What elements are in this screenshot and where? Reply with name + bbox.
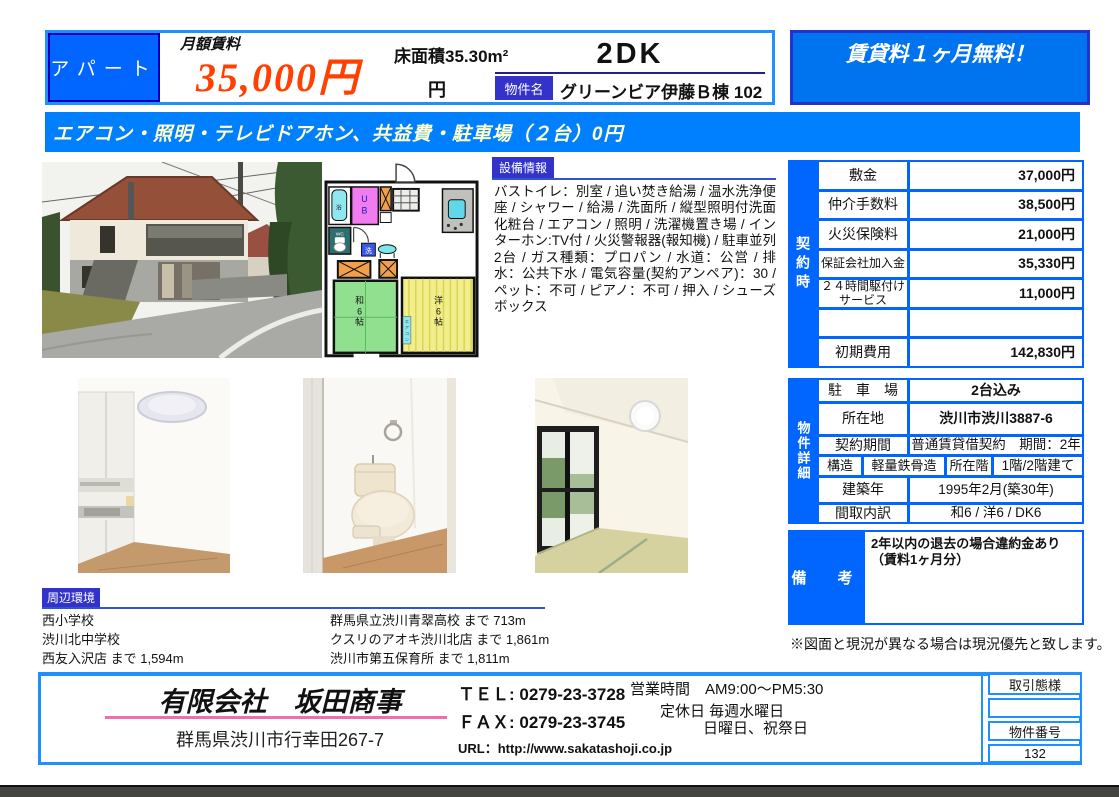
property-name-badge: 物件名	[495, 76, 553, 100]
environment-underline	[42, 607, 545, 609]
table-row: 構造 軽量鉄骨造 所在階 1階/2階建て	[819, 457, 1082, 475]
floorplan-japanese-room-2: 6	[357, 306, 362, 316]
structure-value: 軽量鉄骨造	[864, 457, 944, 475]
feature-banner-text: エアコン・照明・テレビドアホン、共益費・駐車場（２台）0円	[45, 119, 623, 146]
table-row: 保証会社加入金 35,330円	[819, 251, 1082, 278]
equipment-label-badge: 設備情報	[492, 157, 554, 178]
floor-label: 所在階	[947, 457, 991, 475]
contract-row-label: 敷金	[819, 162, 907, 189]
environment-item: 西小学校	[42, 612, 312, 631]
tel-number: ＴＥＬ: 0279-23-3728	[458, 680, 625, 705]
disclaimer-note: ※図面と現況が異なる場合は現況優先と致します。	[790, 634, 1111, 654]
layout-type: 2DK	[495, 38, 765, 71]
website-url: URL：http://www.sakatashoji.co.jp	[458, 738, 672, 757]
location-value: 渋川市渋川3887-6	[910, 404, 1082, 434]
contract-row-value: 21,000円	[910, 221, 1082, 248]
table-row	[819, 310, 1082, 337]
environment-item: 渋川北中学校	[42, 631, 312, 650]
floorplan-wc-label: WC	[336, 231, 345, 237]
remarks-line1: 2年以内の退去の場合違約金あり	[871, 536, 1076, 552]
floorplan-western-room-1: 洋	[434, 294, 443, 305]
environment-list-left: 西小学校 渋川北中学校 西友入沢店 まで 1,594m	[42, 612, 312, 669]
photo-exterior	[42, 162, 322, 358]
feature-banner: エアコン・照明・テレビドアホン、共益費・駐車場（２台）0円	[45, 112, 1080, 152]
contract-table: 契約時 敷金 37,000円 仲介手数料 38,500円 火災保険料 21,00…	[788, 160, 1084, 368]
floorplan-aircon-3: コ	[405, 331, 409, 336]
environment-item: 渋川市第五保育所 まで 1,811m	[330, 650, 620, 669]
table-row: 間取内訳 和6 / 洋6 / DK6	[819, 505, 1082, 522]
campaign-text: 賃貸料１ヶ月無料！	[798, 38, 1082, 68]
footer-divider	[981, 672, 983, 765]
property-name-label: 物件名	[504, 79, 543, 98]
remarks-label: 備 考	[790, 532, 862, 623]
contract-table-strip: 契約時	[790, 162, 816, 366]
company-address: 群馬県渋川市行幸田267-7	[120, 726, 440, 752]
property-no-value: 132	[988, 744, 1082, 763]
contract-row-value: 11,000円	[910, 280, 1082, 307]
floorplan-western-room-2: 6	[436, 306, 441, 316]
floorplan-aircon-4: ン	[405, 337, 409, 342]
contract-row-label: 保証会社加入金	[819, 251, 907, 278]
table-row: 建築年 1995年2月(築30年)	[819, 478, 1082, 502]
contract-row-label: ２４時間駆付けサービス	[819, 280, 907, 307]
photo-tatami-room	[535, 378, 688, 573]
contract-row-value: 38,500円	[910, 192, 1082, 219]
floorplan-ub-u: U	[361, 194, 367, 204]
parking-label: 駐 車 場	[819, 380, 907, 401]
floorplan-bath-label: 浴	[336, 204, 342, 212]
period-value: 普通賃貸借契約 期間：2年	[910, 437, 1082, 454]
table-row: 火災保険料 21,000円	[819, 221, 1082, 248]
deal-type-table: 取引態様 物件番号 132	[988, 672, 1082, 765]
environment-label: 周辺環境	[47, 589, 95, 606]
floor-value: 1階/2階建て	[994, 457, 1082, 475]
built-label: 建築年	[819, 478, 907, 502]
environment-item: クスリのアオキ渋川北店 まで 1,861m	[330, 631, 620, 650]
property-type-badge: アパート	[48, 33, 160, 102]
madori-value: 和6 / 洋6 / DK6	[910, 505, 1082, 522]
flyer-page: アパート 月額賃料 35,000円 床面積35.30m² 円 2DK 物件名 グ…	[0, 0, 1119, 797]
property-type-label: アパート	[50, 54, 158, 81]
floorplan-aircon-2: ア	[405, 325, 409, 330]
remarks-text: 2年以内の退去の場合違約金あり （賃料1ヶ月分）	[865, 532, 1082, 623]
parking-value: 2台込み	[910, 380, 1082, 401]
deal-type-label: 取引態様	[988, 673, 1082, 695]
remarks-line2: （賃料1ヶ月分）	[871, 552, 1076, 568]
period-label: 契約期間	[819, 437, 907, 454]
structure-label: 構造	[819, 457, 861, 475]
location-label: 所在地	[819, 404, 907, 434]
table-row: ２４時間駆付けサービス 11,000円	[819, 280, 1082, 307]
floor-area: 床面積35.30m²	[394, 42, 508, 67]
floorplan-japanese-room-3: 帖	[355, 316, 364, 327]
table-row: 初期費用 142,830円	[819, 339, 1082, 366]
environment-label-badge: 周辺環境	[42, 588, 100, 607]
floorplan-wash-label: 洗	[365, 246, 372, 255]
madori-label: 間取内訳	[819, 505, 907, 522]
floorplan-image: 浴 U B WC 洗 和	[324, 161, 480, 361]
remarks-box: 備 考 2年以内の退去の場合違約金あり （賃料1ヶ月分）	[788, 530, 1084, 625]
contract-row-label: 仲介手数料	[819, 192, 907, 219]
environment-item: 西友入沢店 まで 1,594m	[42, 650, 312, 669]
contract-row-value: 142,830円	[910, 339, 1082, 366]
photo-kitchen	[78, 378, 230, 573]
table-row: 仲介手数料 38,500円	[819, 192, 1082, 219]
details-table-strip: 物件詳細	[790, 380, 816, 522]
details-table: 物件詳細 駐 車 場 2台込み 所在地 渋川市渋川3887-6 契約期間 普通賃…	[788, 378, 1084, 524]
equipment-label: 設備情報	[499, 159, 547, 176]
table-row: 敷金 37,000円	[819, 162, 1082, 189]
floor-area-unit: 円	[428, 76, 446, 102]
fax-number: ＦＡＸ: 0279-23-3745	[458, 708, 625, 733]
environment-list-right: 群馬県立渋川青翠高校 まで 713m クスリのアオキ渋川北店 まで 1,861m…	[330, 612, 620, 669]
contract-row-label	[819, 310, 907, 337]
floorplan-aircon-1: エ	[405, 319, 409, 324]
floorplan-ub-b: B	[362, 206, 368, 216]
photo-toilet	[303, 378, 456, 573]
equipment-underline	[492, 178, 776, 180]
contract-row-label: 初期費用	[819, 339, 907, 366]
contract-row-value	[910, 310, 1082, 337]
equipment-text: バストイレ：別室 / 追い焚き給湯 / 温水洗浄便座 / シャワー / 給湯 /…	[494, 184, 776, 316]
holiday-line2: 日曜日、祝祭日	[703, 717, 808, 738]
rent-value: 35,000円	[196, 45, 360, 103]
company-underline	[105, 716, 447, 719]
built-value: 1995年2月(築30年)	[910, 478, 1082, 502]
floorplan-japanese-room-1: 和	[355, 295, 364, 305]
environment-item: 群馬県立渋川青翠高校 まで 713m	[330, 612, 620, 631]
contract-row-label: 火災保険料	[819, 221, 907, 248]
contract-row-value: 35,330円	[910, 251, 1082, 278]
floorplan-western-room-3: 帖	[434, 316, 443, 327]
bottom-edge-bar	[0, 785, 1119, 797]
layout-underline	[495, 72, 765, 74]
company-name: 有限会社 坂田商事	[110, 680, 450, 719]
business-hours: 営業時間 AM9:00～PM5:30	[630, 678, 823, 699]
table-row: 所在地 渋川市渋川3887-6	[819, 404, 1082, 434]
property-no-label: 物件番号	[988, 721, 1082, 741]
table-row: 駐 車 場 2台込み	[819, 380, 1082, 401]
deal-type-value	[988, 698, 1082, 718]
property-name: グリーンビア伊藤Ｂ棟 102	[560, 78, 772, 103]
table-row: 契約期間 普通賃貸借契約 期間：2年	[819, 437, 1082, 454]
contract-row-value: 37,000円	[910, 162, 1082, 189]
